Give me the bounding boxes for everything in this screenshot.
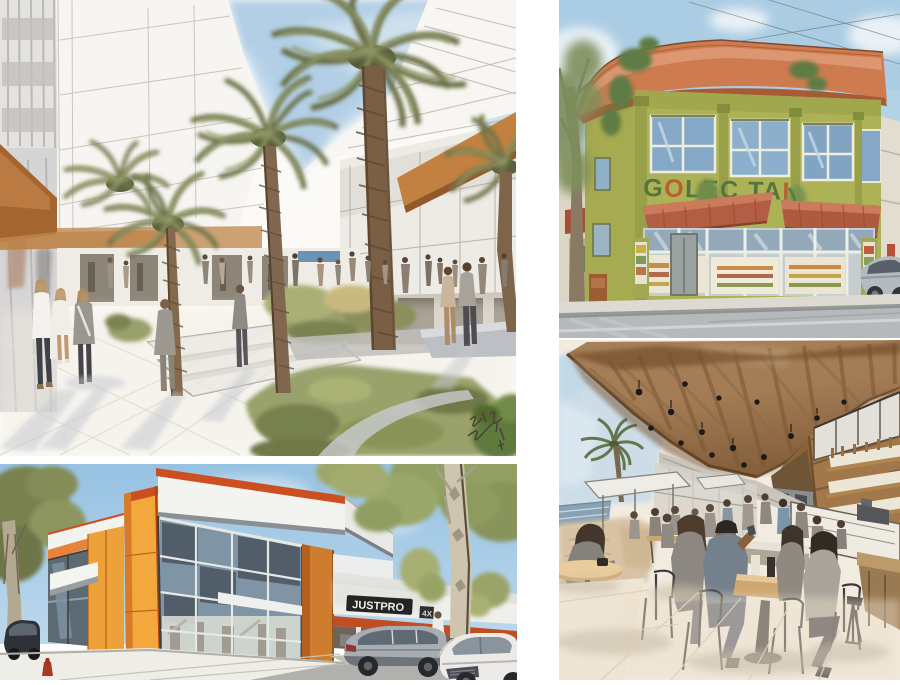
svg-text:4X: 4X: [422, 609, 433, 619]
